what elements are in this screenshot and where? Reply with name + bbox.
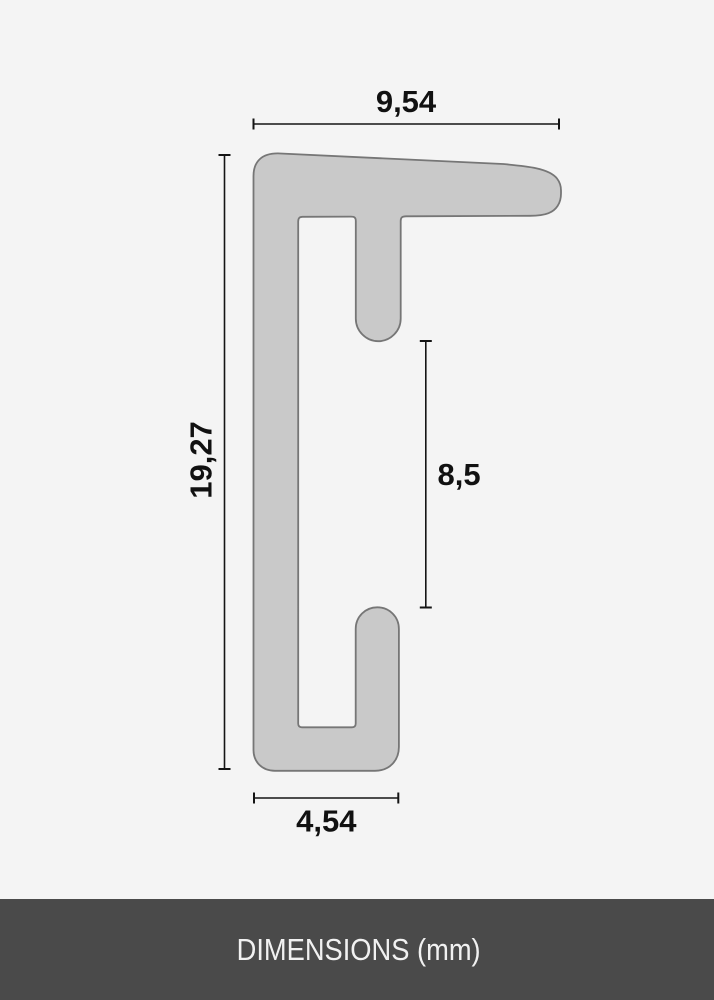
svg-text:19,27: 19,27	[184, 421, 219, 499]
svg-text:8,5: 8,5	[438, 457, 481, 492]
svg-text:9,54: 9,54	[376, 84, 437, 119]
svg-text:4,54: 4,54	[296, 804, 357, 839]
